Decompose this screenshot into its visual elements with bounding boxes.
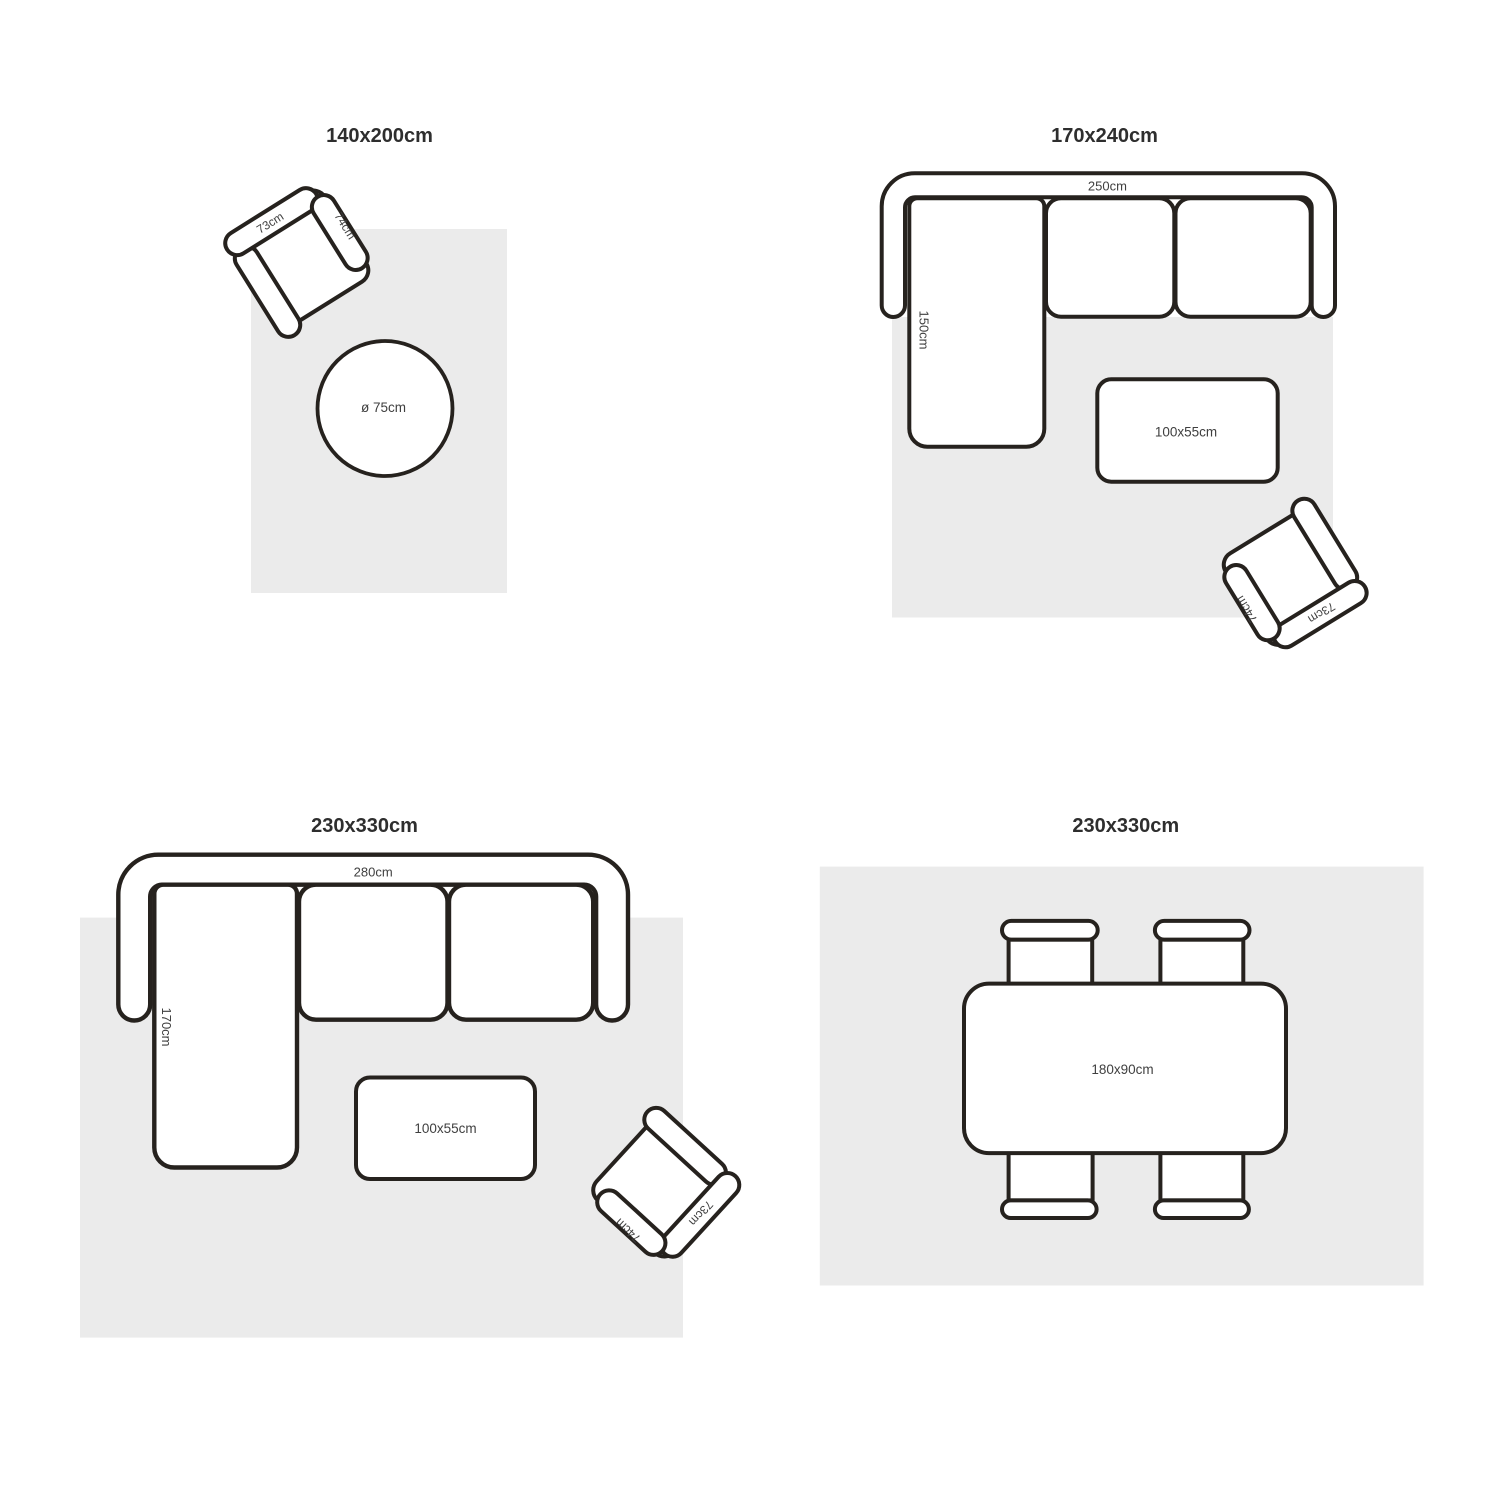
svg-text:180x90cm: 180x90cm <box>1091 1062 1153 1077</box>
svg-text:150cm: 150cm <box>916 310 931 349</box>
svg-text:230x330cm: 230x330cm <box>1072 815 1179 837</box>
svg-text:ø 75cm: ø 75cm <box>361 400 406 415</box>
svg-text:230x330cm: 230x330cm <box>311 815 418 837</box>
svg-text:170cm: 170cm <box>159 1007 174 1046</box>
svg-text:140x200cm: 140x200cm <box>326 125 433 147</box>
svg-text:280cm: 280cm <box>354 865 393 880</box>
svg-text:100x55cm: 100x55cm <box>414 1121 476 1136</box>
svg-text:250cm: 250cm <box>1088 179 1127 194</box>
svg-text:170x240cm: 170x240cm <box>1051 125 1158 147</box>
svg-text:100x55cm: 100x55cm <box>1155 425 1217 440</box>
